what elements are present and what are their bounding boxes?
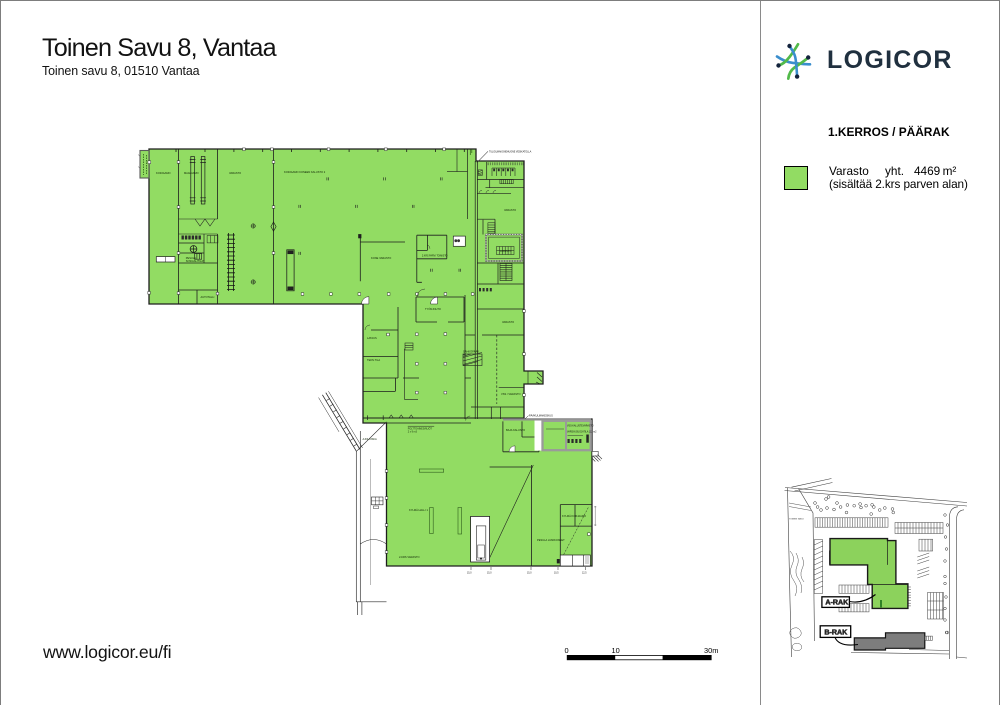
svg-text:BAJA KALUSTO: BAJA KALUSTO [506, 428, 525, 432]
svg-text:0: 0 [565, 646, 569, 655]
svg-text:TULOILMAKONEHUONE VESIKATOLLA: TULOILMAKONEHUONE VESIKATOLLA [489, 150, 532, 153]
svg-text:15,0: 15,0 [467, 573, 472, 575]
svg-text:SOSIAALITILAT: SOSIAALITILAT [186, 259, 205, 263]
svg-text:MAALAAMO: MAALAAMO [184, 171, 199, 175]
svg-text:SÄHKÖPÄÄK.: SÄHKÖPÄÄK. [463, 350, 480, 354]
svg-text:KONE VARASTO: KONE VARASTO [371, 256, 391, 260]
svg-text:10,5: 10,5 [554, 573, 559, 575]
svg-text:PÄÄKULMAKESKUS: PÄÄKULMAKESKUS [529, 415, 553, 418]
svg-text:VARASTO: VARASTO [229, 171, 241, 175]
svg-text:VARSIN.SUOJATILA 112 m2: VARSIN.SUOJATILA 112 m2 [567, 430, 597, 433]
svg-text:TOINEN SAVU: TOINEN SAVU [789, 518, 804, 521]
svg-text:A-RAK: A-RAK [825, 599, 849, 607]
svg-text:TYÖNJOHTO: TYÖNJOHTO [425, 307, 441, 311]
svg-text:KORJAAMO KONEEN KALUSTO 2: KORJAAMO KONEEN KALUSTO 2 [284, 170, 326, 174]
svg-text:VSS-KALUSTEVARASTO: VSS-KALUSTEVARASTO [567, 425, 594, 428]
svg-text:TEKN.TILA: TEKN.TILA [367, 358, 380, 362]
svg-text:LATAUS: LATAUS [367, 336, 377, 340]
svg-text:12,5: 12,5 [582, 573, 587, 575]
svg-text:15,0: 15,0 [487, 573, 492, 575]
svg-text:B-RAK: B-RAK [824, 628, 848, 636]
svg-text:KORJAAMO: KORJAAMO [156, 171, 171, 175]
svg-text:15,0: 15,0 [527, 573, 532, 575]
svg-text:AUTOTALLI: AUTOTALLI [201, 295, 215, 299]
svg-text:2-KRS VARASTO: 2-KRS VARASTO [399, 555, 420, 559]
svg-text:ARKISTO: ARKISTO [500, 249, 511, 253]
svg-text:AJOLUISKA: AJOLUISKA [363, 437, 378, 441]
svg-text:KYLMÄ KORJAAMO: KYLMÄ KORJAAMO [562, 514, 586, 518]
svg-text:KYLMÄ HALLI 1: KYLMÄ HALLI 1 [409, 508, 428, 512]
svg-text:PESULA LUMIKONEET: PESULA LUMIKONEET [537, 538, 565, 542]
svg-text:VARASTO: VARASTO [502, 320, 514, 324]
svg-text:2 x 9 m3: 2 x 9 m3 [408, 431, 418, 434]
svg-text:VSS / VARASTO: VSS / VARASTO [501, 392, 521, 396]
svg-text:10: 10 [612, 646, 620, 655]
svg-text:30m: 30m [704, 646, 718, 655]
svg-text:2.KRS PARVI TOIMISTO: 2.KRS PARVI TOIMISTO [422, 255, 448, 258]
svg-text:VARASTO: VARASTO [504, 208, 516, 212]
